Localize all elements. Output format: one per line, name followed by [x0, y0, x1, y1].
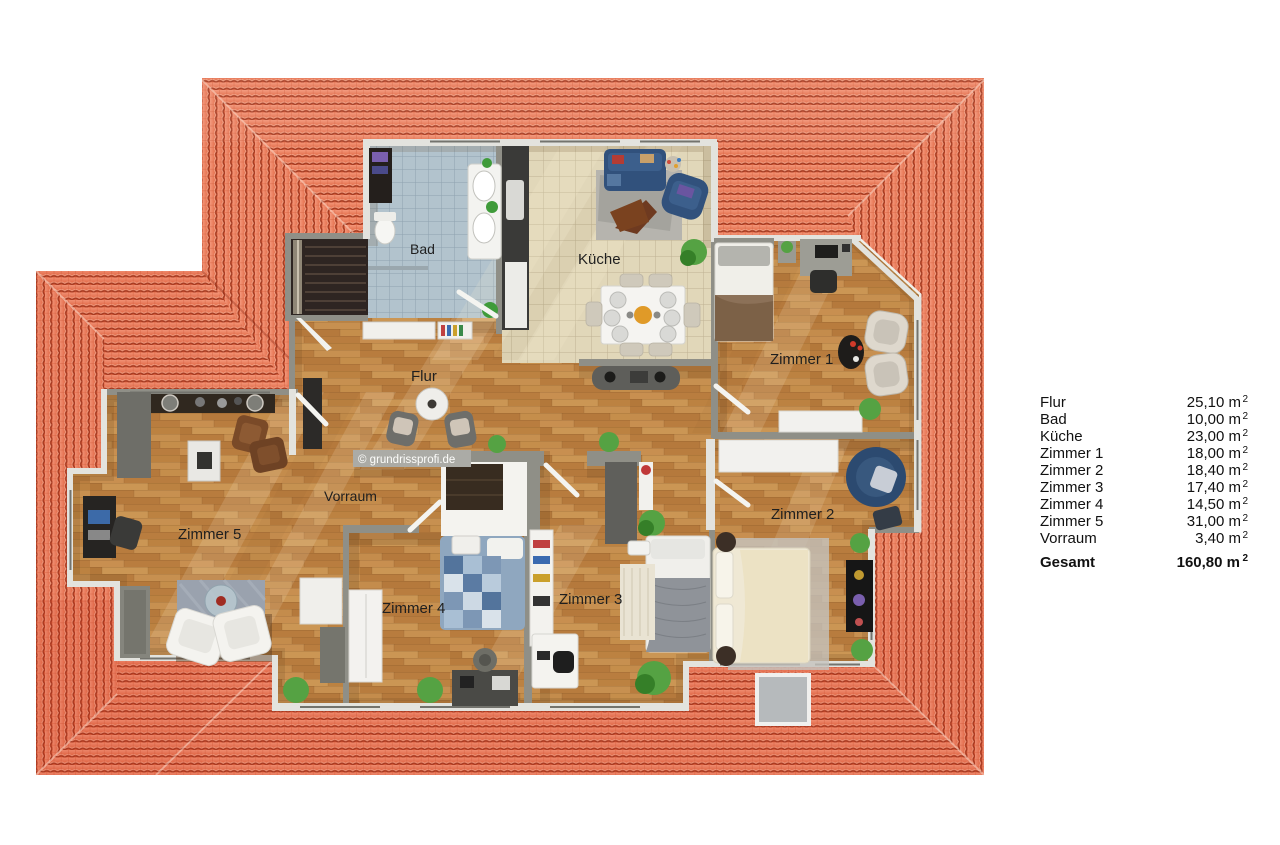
svg-text:25,10 m: 25,10 m — [1187, 394, 1241, 411]
svg-text:2: 2 — [1242, 462, 1248, 473]
svg-text:Vorraum: Vorraum — [324, 488, 377, 504]
svg-text:Küche: Küche — [578, 251, 621, 268]
svg-text:14,50 m: 14,50 m — [1187, 496, 1241, 513]
svg-text:2: 2 — [1242, 445, 1248, 456]
svg-text:Küche: Küche — [1040, 428, 1083, 445]
svg-text:18,40 m: 18,40 m — [1187, 462, 1241, 479]
svg-text:Zimmer 4: Zimmer 4 — [382, 600, 445, 617]
svg-text:Gesamt: Gesamt — [1040, 554, 1095, 571]
svg-text:Bad: Bad — [1040, 411, 1067, 428]
svg-text:31,00 m: 31,00 m — [1187, 513, 1241, 530]
svg-text:Flur: Flur — [1040, 394, 1066, 411]
svg-text:Zimmer 2: Zimmer 2 — [1040, 462, 1103, 479]
svg-text:Bad: Bad — [410, 241, 435, 257]
svg-text:2: 2 — [1242, 496, 1248, 507]
svg-text:2: 2 — [1242, 513, 1248, 524]
svg-text:2: 2 — [1242, 553, 1248, 564]
svg-text:2: 2 — [1242, 479, 1248, 490]
svg-text:Vorraum: Vorraum — [1040, 530, 1097, 547]
svg-text:18,00 m: 18,00 m — [1187, 445, 1241, 462]
svg-text:Flur: Flur — [411, 368, 437, 385]
svg-text:Zimmer 3: Zimmer 3 — [1040, 479, 1103, 496]
svg-text:Zimmer 3: Zimmer 3 — [559, 591, 622, 608]
svg-text:Zimmer 2: Zimmer 2 — [771, 506, 834, 523]
svg-text:Zimmer 4: Zimmer 4 — [1040, 496, 1103, 513]
svg-text:2: 2 — [1242, 428, 1248, 439]
svg-text:3,40 m: 3,40 m — [1195, 530, 1241, 547]
svg-text:Zimmer 5: Zimmer 5 — [178, 526, 241, 543]
svg-text:160,80 m: 160,80 m — [1177, 554, 1240, 571]
svg-text:23,00 m: 23,00 m — [1187, 428, 1241, 445]
svg-text:17,40 m: 17,40 m — [1187, 479, 1241, 496]
svg-text:© grundrissprofi.de: © grundrissprofi.de — [358, 454, 455, 466]
svg-text:2: 2 — [1242, 530, 1248, 541]
svg-text:Zimmer 1: Zimmer 1 — [1040, 445, 1103, 462]
svg-text:2: 2 — [1242, 394, 1248, 405]
svg-text:Zimmer 1: Zimmer 1 — [770, 351, 833, 368]
svg-text:10,00 m: 10,00 m — [1187, 411, 1241, 428]
svg-text:Zimmer 5: Zimmer 5 — [1040, 513, 1103, 530]
svg-text:2: 2 — [1242, 411, 1248, 422]
